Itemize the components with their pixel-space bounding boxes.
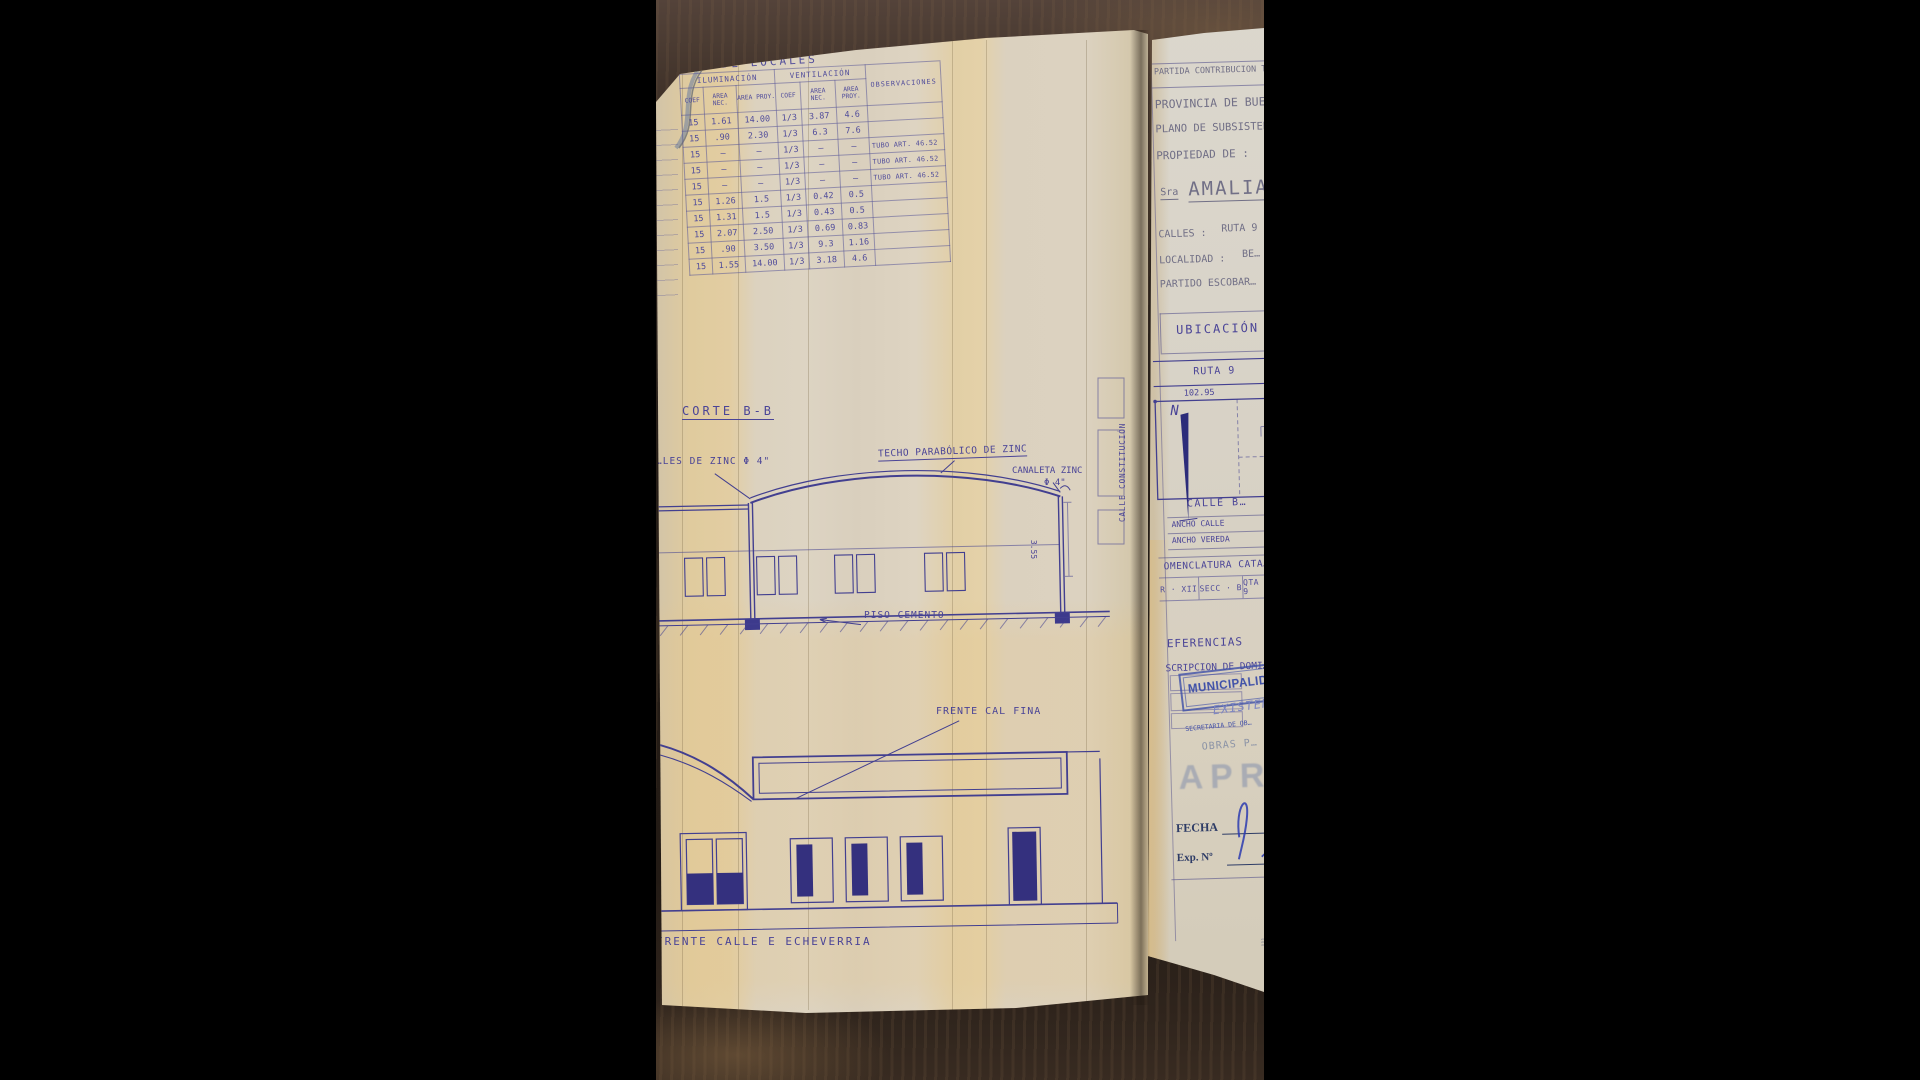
label-canaleta-diametro: Φ 4" — [1044, 478, 1066, 488]
cell-coef-vent: 1/3 — [783, 237, 809, 254]
col-area-proy: AREA PROY. — [736, 83, 776, 112]
cell-coef: 15 — [689, 258, 713, 275]
cell-area-nec-vent: 0.43 — [806, 203, 842, 221]
calle-abajo: CALLE B… — [1187, 497, 1247, 510]
cell-coef-vent: 1/3 — [777, 125, 803, 142]
cell-coef: 15 — [688, 242, 712, 259]
cell-area-nec: 1.26 — [709, 192, 743, 210]
north-letter: N — [1170, 403, 1179, 419]
cell-area-proy: 14.00 — [745, 254, 785, 272]
col-coef-2: COEF — [775, 82, 801, 110]
rule — [1147, 84, 1264, 88]
table-cropped-rows — [656, 116, 678, 308]
cell-area-proy-vent: 0.5 — [841, 202, 873, 220]
handwriting-ink — [1220, 778, 1264, 880]
label-piso-cemento: PISO CEMENTO — [864, 610, 945, 621]
sheet-caratula: PARTIDA CONTRIBUCION T… PROVINCIA DE BUE… — [1144, 0, 1264, 1080]
frente-drawing — [656, 696, 1128, 954]
cell-coef: 15 — [684, 162, 708, 179]
corte-title: CORTE B-B — [682, 404, 774, 418]
cell-coef-vent: 1/3 — [778, 141, 804, 158]
cell-area-nec-vent: 6.3 — [802, 123, 838, 141]
cell-area-proy-vent: — — [838, 138, 870, 156]
cell-area-nec: — — [706, 144, 740, 162]
cell-area-nec: — — [707, 160, 741, 178]
cell-area-proy-vent: — — [840, 170, 872, 188]
cell-area-nec-vent: — — [804, 155, 840, 173]
photo-stage: …A DE LOCALES ILUMINACIÓN VENTILACIÓN OB… — [0, 0, 1920, 1080]
cell-coef-vent: 1/3 — [780, 173, 806, 190]
corte-b-b-drawing — [656, 393, 1129, 668]
cell-area-proy-vent: 4.6 — [836, 106, 868, 124]
cell-area-nec: 1.61 — [704, 112, 738, 130]
cell-area-nec-vent: 3.18 — [809, 251, 845, 269]
partida-line: PARTIDA CONTRIBUCION T… — [1154, 64, 1264, 77]
cell-area-nec: 1.31 — [710, 208, 744, 226]
cell-area-nec-vent: 0.69 — [807, 219, 843, 237]
cell-coef: 15 — [685, 178, 709, 195]
provincia-line: PROVINCIA DE BUEN… — [1155, 94, 1264, 111]
cell-coef-vent: 1/3 — [781, 189, 807, 206]
titular-prefijo: Sra — [1160, 187, 1178, 199]
cell-coef: 15 — [683, 146, 707, 163]
cell-area-nec: .90 — [711, 240, 745, 258]
cell-area-nec: 1.55 — [712, 256, 746, 274]
cell-coef-vent: 1/3 — [776, 109, 802, 126]
cell-area-nec: — — [708, 176, 742, 194]
cell-area-nec: 2.07 — [710, 224, 744, 242]
referencias-title: EFERENCIAS — [1167, 635, 1244, 650]
label-frente-cal-fina: FRENTE CAL FINA — [936, 706, 1041, 717]
cell-area-nec-vent: — — [805, 171, 841, 189]
nomenclatura-title: OMENCLATURA CATA… — [1164, 558, 1264, 572]
cell-coef: 15 — [682, 114, 706, 131]
cell-area-proy-vent: 1.16 — [843, 233, 875, 251]
localidad-valor: BE… — [1242, 249, 1260, 261]
cell-coef-vent: 1/3 — [784, 253, 810, 270]
table-body: 15 1.61 14.00 1/3 3.87 4.6 15 .90 2. — [682, 102, 951, 275]
nomenclatura-cells: R · XII SECC · B QTA · 9 — [1159, 574, 1264, 601]
col-area-nec: AREA NEC. — [703, 86, 737, 115]
rule — [1160, 313, 1162, 353]
calles-label: CALLES : — [1158, 228, 1206, 240]
titular-nombre: AMALIA — [1188, 176, 1264, 202]
label-frente-calle-echeverria: FRENTE CALLE E ECHEVERRIA — [656, 935, 872, 948]
cell-area-nec-vent: — — [803, 139, 839, 157]
ubicacion-frente-dim: 102.95 — [1184, 388, 1215, 399]
label-canaleta: CANALETA ZINC — [1012, 466, 1082, 476]
cell-coef: 15 — [682, 130, 706, 147]
group-observaciones: OBSERVACIONES — [865, 61, 942, 106]
planilla-de-locales-table: …A DE LOCALES ILUMINACIÓN VENTILACIÓN OB… — [678, 44, 951, 275]
municipalidad-stamp-text: MUNICIPALID… — [1187, 673, 1264, 695]
cell-area-nec: .90 — [705, 128, 739, 146]
col-area-proy-2: AREA PROY. — [835, 79, 867, 108]
cell-coef: 15 — [687, 226, 711, 243]
partido-line: PARTIDO ESCOBAR… — [1160, 277, 1257, 291]
label-calle-constitucion: CALLE CONSTITUCIÓN — [1118, 423, 1127, 522]
cell-area-proy-vent: 7.6 — [837, 122, 869, 140]
localidad-label: LOCALIDAD : — [1159, 253, 1226, 266]
sheet-gap-shadow — [1130, 30, 1150, 1005]
nomenclatura-secc: SECC · B — [1199, 575, 1244, 600]
plano-line: PLANO DE SUBSISTENC… — [1155, 120, 1264, 136]
col-area-nec-2: AREA NEC. — [800, 80, 836, 109]
label-zinc-left: …LES DE ZINC Φ 4" — [656, 456, 770, 467]
cell-area-proy-vent: 0.5 — [840, 186, 872, 204]
rule — [1160, 310, 1264, 314]
cell-area-proy-vent: 4.6 — [844, 249, 876, 267]
expediente-label: Exp. Nº — [1177, 851, 1213, 864]
cell-coef-vent: 1/3 — [781, 205, 807, 222]
nomenclatura-qta: QTA · 9 — [1243, 574, 1264, 599]
col-coef: COEF — [680, 87, 704, 115]
propiedad-line: PROPIEDAD DE : — [1156, 147, 1249, 163]
ubicacion-title: UBICACIÓN — [1176, 321, 1259, 337]
cell-coef-vent: 1/3 — [779, 157, 805, 174]
cell-coef: 15 — [686, 194, 710, 211]
sheet-plan: …A DE LOCALES ILUMINACIÓN VENTILACIÓN OB… — [656, 0, 1148, 1080]
cell-area-nec-vent: 0.42 — [806, 187, 842, 205]
ubicacion-ruta: RUTA 9 — [1193, 365, 1235, 377]
obras-publicas-stamp-text: OBRAS P… — [1201, 737, 1258, 752]
nomenclatura-circ: R · XII — [1159, 576, 1200, 601]
cell-coef-vent: 1/3 — [782, 221, 808, 238]
dim-altura: 3.55 — [1029, 540, 1038, 559]
ancho-calle-label: ANCHO CALLE — [1171, 519, 1224, 529]
calles-valor: RUTA 9 — [1221, 223, 1257, 235]
cell-coef: 15 — [687, 210, 711, 227]
fecha-label: FECHA — [1176, 820, 1218, 836]
cell-area-proy-vent: 0.83 — [842, 218, 874, 236]
small-print — [1261, 938, 1264, 946]
cell-area-proy-vent: — — [839, 154, 871, 172]
ancho-vereda-label: ANCHO VEREDA — [1172, 534, 1230, 545]
blueprint-photo: …A DE LOCALES ILUMINACIÓN VENTILACIÓN OB… — [656, 0, 1264, 1080]
cell-area-nec-vent: 3.87 — [801, 107, 837, 125]
cell-observaciones — [875, 246, 951, 266]
cell-area-nec-vent: 9.3 — [808, 235, 844, 253]
